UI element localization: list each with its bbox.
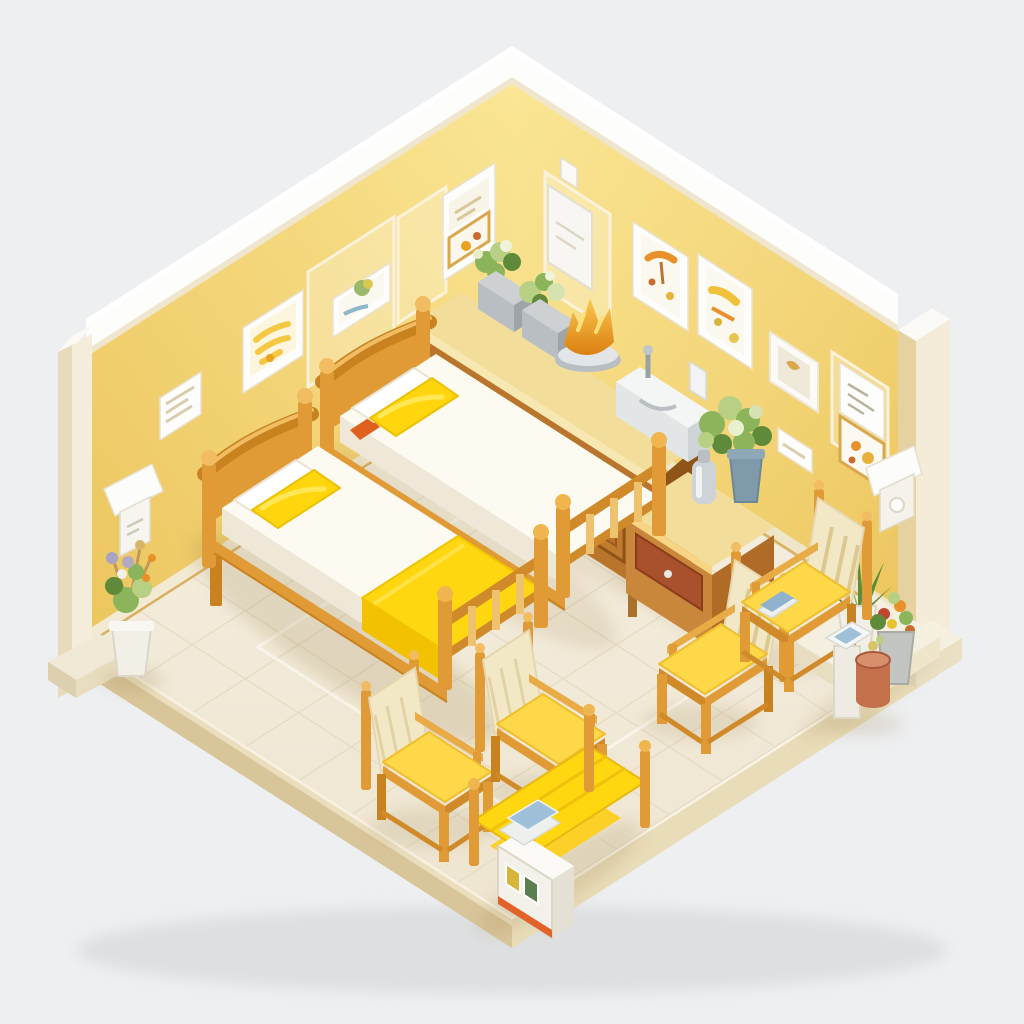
scene-canvas xyxy=(0,0,1024,1024)
isometric-room-illustration xyxy=(0,0,1024,1024)
